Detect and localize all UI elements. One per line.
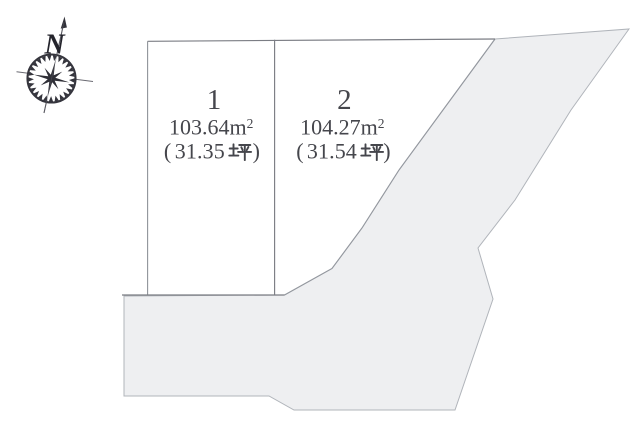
svg-text:N: N	[44, 30, 67, 61]
svg-text:103.64m2: 103.64m2	[169, 114, 253, 139]
svg-text:104.27m2: 104.27m2	[300, 114, 384, 139]
svg-text:1: 1	[207, 84, 222, 116]
svg-text:31.54: 31.54	[307, 138, 357, 163]
svg-text:2: 2	[337, 84, 352, 116]
svg-text:(: (	[296, 138, 303, 163]
svg-text:31.35: 31.35	[175, 138, 225, 163]
svg-text:(: (	[164, 138, 171, 163]
svg-text:): )	[383, 138, 390, 163]
svg-text:): )	[253, 138, 260, 163]
